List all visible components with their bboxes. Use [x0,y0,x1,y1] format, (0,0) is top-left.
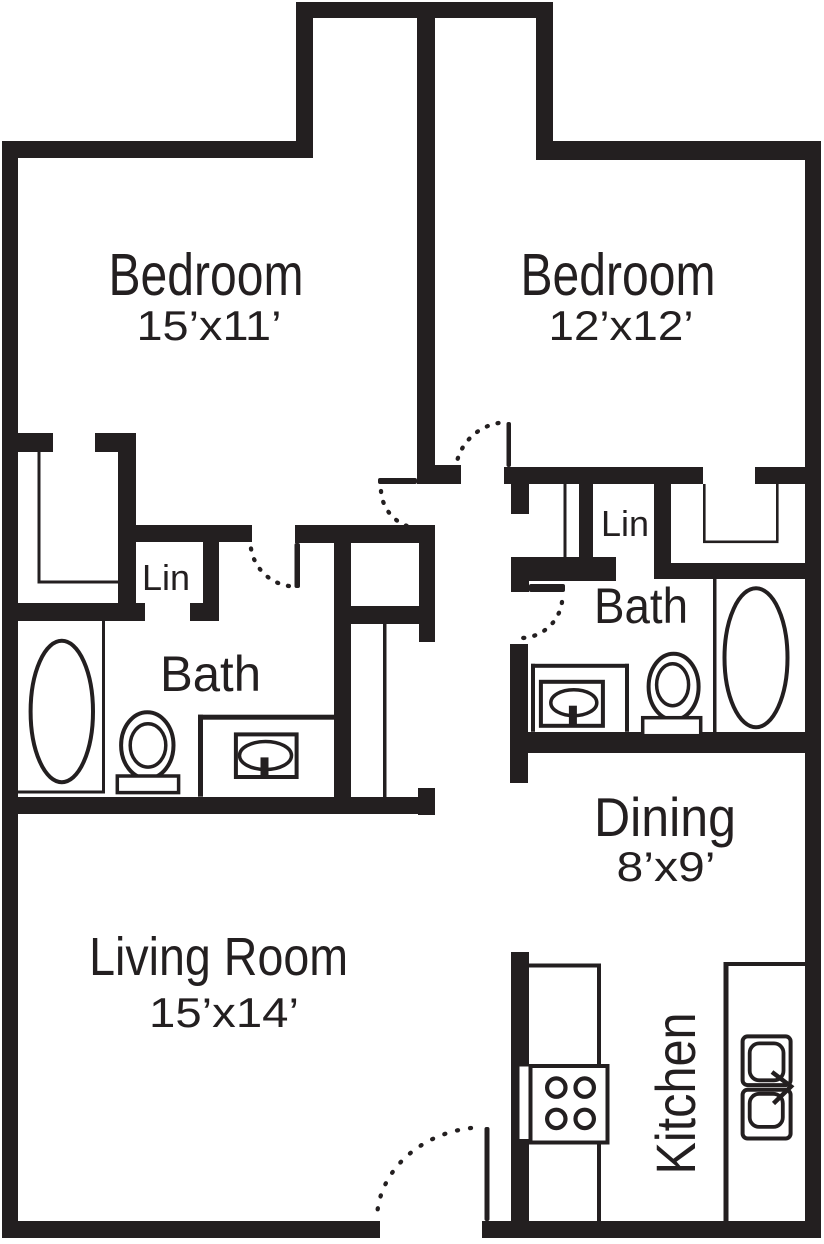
svg-text:Dining: Dining [594,786,736,848]
svg-text:15’x11’: 15’x11’ [137,302,282,349]
svg-text:Bath: Bath [594,578,688,634]
svg-text:12’x12’: 12’x12’ [549,302,694,349]
svg-text:Living Room: Living Room [89,927,348,987]
svg-text:Lin: Lin [142,557,190,598]
svg-text:Bedroom: Bedroom [109,242,304,308]
svg-text:Bath: Bath [160,646,261,702]
svg-text:8’x9’: 8’x9’ [617,843,716,890]
svg-text:Bedroom: Bedroom [521,242,716,308]
svg-text:Lin: Lin [601,503,649,544]
svg-text:Kitchen: Kitchen [644,1013,707,1175]
svg-text:15’x14’: 15’x14’ [149,989,299,1036]
